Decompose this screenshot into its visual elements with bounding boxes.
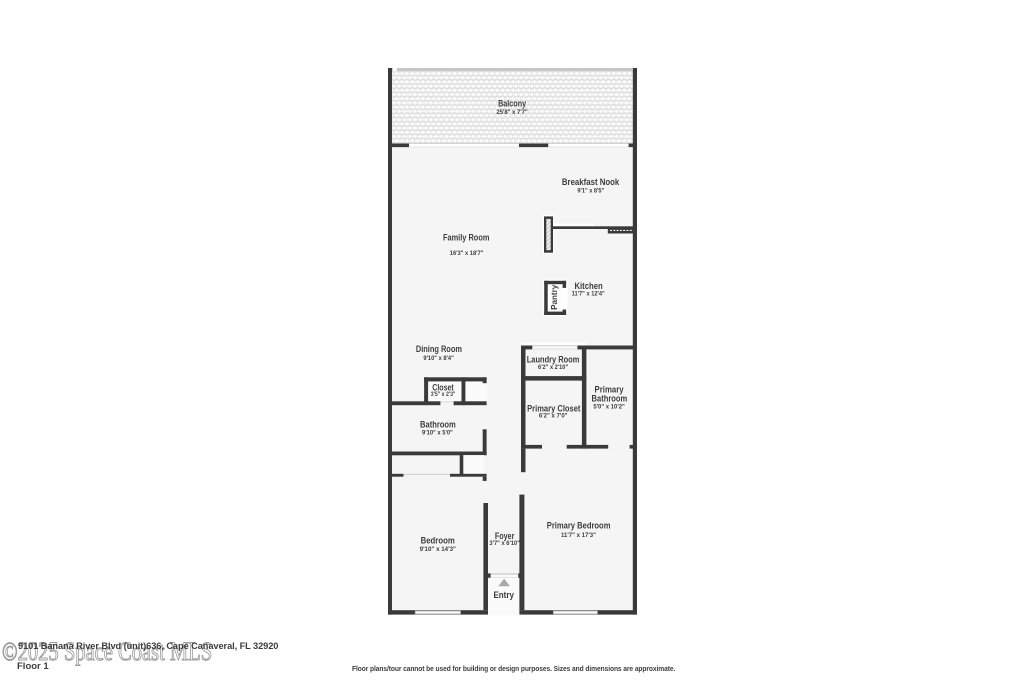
svg-text:Bedroom: Bedroom (421, 536, 455, 546)
svg-text:Bathroom: Bathroom (592, 394, 628, 404)
svg-text:3'7" x 6'10": 3'7" x 6'10" (489, 540, 520, 547)
svg-text:Entry: Entry (493, 590, 514, 600)
svg-text:Family Room: Family Room (443, 232, 490, 242)
svg-text:16'3" x 18'7": 16'3" x 18'7" (450, 250, 484, 257)
svg-text:Primary Bedroom: Primary Bedroom (547, 521, 611, 531)
svg-text:Kitchen: Kitchen (574, 281, 602, 291)
svg-text:5'0" x 10'2": 5'0" x 10'2" (593, 404, 625, 411)
svg-text:Pantry: Pantry (549, 285, 559, 310)
svg-text:3'5" x 2'3": 3'5" x 2'3" (431, 391, 456, 398)
svg-text:9'1" x 8'5": 9'1" x 8'5" (577, 188, 604, 195)
svg-text:11'7" x 17'3": 11'7" x 17'3" (561, 532, 596, 539)
svg-text:Bathroom: Bathroom (420, 420, 456, 430)
svg-text:6'2" x 2'10": 6'2" x 2'10" (538, 364, 568, 371)
svg-text:Breakfast Nook: Breakfast Nook (562, 177, 620, 187)
svg-text:6'2" x 7'0": 6'2" x 7'0" (539, 413, 568, 420)
svg-text:11'7" x 12'4": 11'7" x 12'4" (572, 291, 605, 298)
svg-text:9'10" x 8'4": 9'10" x 8'4" (423, 355, 453, 362)
svg-text:Dining Room: Dining Room (416, 344, 462, 354)
svg-text:25'8" x 7'7": 25'8" x 7'7" (497, 109, 528, 116)
svg-text:Balcony: Balcony (498, 99, 526, 109)
svg-text:9'10" x 14'3": 9'10" x 14'3" (420, 546, 456, 553)
svg-text:9'10" x 5'0": 9'10" x 5'0" (422, 430, 453, 437)
